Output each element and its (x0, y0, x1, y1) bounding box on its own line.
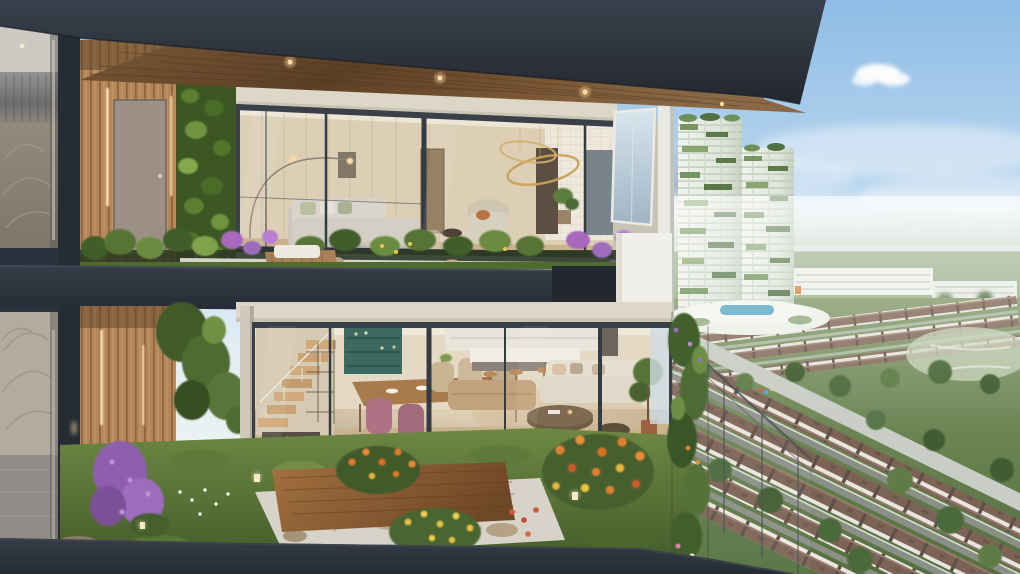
teal-cabinet (344, 324, 402, 374)
marigold-cluster-right (542, 434, 654, 510)
fridge (600, 326, 618, 356)
open-window (612, 109, 655, 225)
lower-unit (52, 302, 710, 574)
day-bed (274, 245, 320, 258)
led-strip (100, 330, 103, 425)
architectural-rendering: Cutaway view of duplex sky-villa apartme… (0, 0, 1020, 574)
wall-art (338, 152, 356, 178)
door-handle (158, 174, 162, 178)
rendering-canvas (0, 0, 1020, 574)
led-strip (142, 345, 145, 425)
table-flowers (440, 354, 452, 362)
led-strip (106, 88, 109, 206)
orange-cluster-left (336, 446, 420, 494)
gray-wall-panel (585, 150, 613, 235)
led-strip (170, 96, 173, 196)
wall-lamp (71, 421, 77, 435)
corner-window (650, 326, 669, 424)
flower-planter-box (552, 266, 616, 308)
fox-figure (476, 210, 490, 220)
